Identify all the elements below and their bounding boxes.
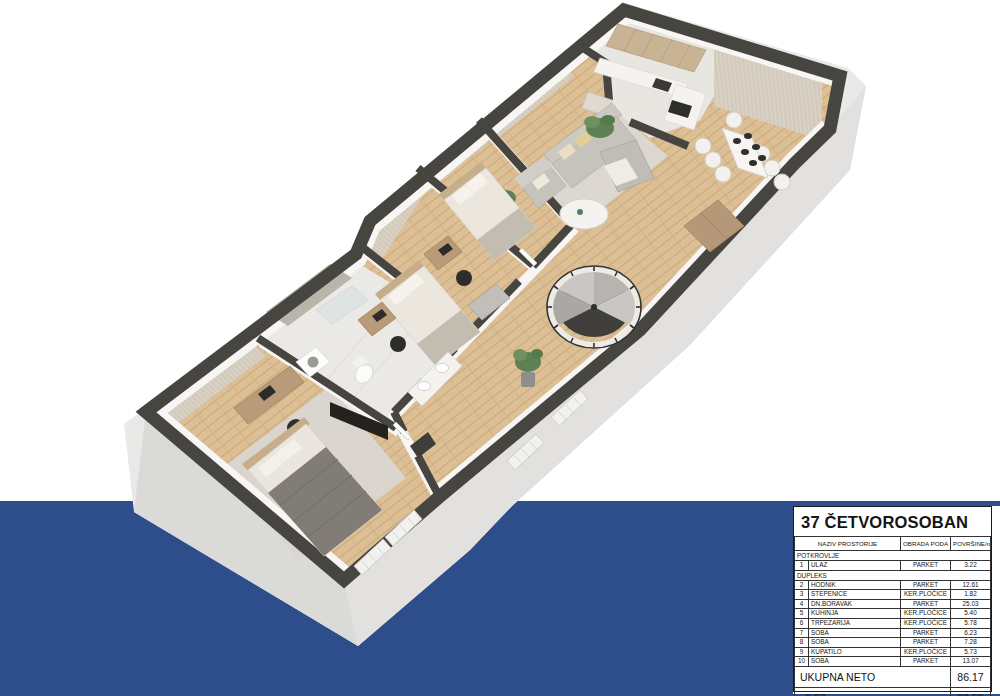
total-row: x0,97:83.58 [795, 687, 991, 696]
area-table-row: 8SOBAPARKET7.28 [795, 638, 991, 648]
area-table-row: 6TRPEZARIJAKER.PLOČICE5.78 [795, 618, 991, 628]
page: 37 ČETVOROSOBAN NAZIV PROSTORIJEOBRADA P… [0, 0, 1000, 696]
bed2-chair [390, 336, 406, 352]
coffee-table [560, 199, 608, 229]
total-row: UKUPNA NETO86.17 [795, 666, 991, 687]
section-row: POTKROVLJE [795, 551, 991, 561]
area-table-row: 2HODNIKPARKET12.61 [795, 580, 991, 590]
section-row: DUPLEKS [795, 570, 991, 580]
area-table-row: 3STEPENICEKER.PLOČICE1.82 [795, 590, 991, 600]
area-table-row: 10SOBAPARKET13.07 [795, 657, 991, 667]
area-table-row: 1ULAZPARKET3.22 [795, 561, 991, 571]
area-table: 37 ČETVOROSOBAN NAZIV PROSTORIJEOBRADA P… [793, 506, 1000, 694]
area-table-row: 5KUHINJAKER.PLOČICE5.40 [795, 609, 991, 619]
area-table-row: 7SOBAPARKET6.23 [795, 628, 991, 638]
table-title: 37 ČETVOROSOBAN [794, 507, 991, 536]
spiral-staircase [547, 266, 641, 348]
room-areas-table: NAZIV PROSTORIJEOBRADA PODAPOVRŠINE/m²PO… [794, 536, 991, 696]
area-table-row: 9KUPATILOKER.PLOČICE5.73 [795, 647, 991, 657]
table-header-row: NAZIV PROSTORIJEOBRADA PODAPOVRŠINE/m² [795, 537, 991, 551]
bed1-chair [456, 270, 472, 286]
area-table-row: 4DN.BORAVAKPARKET25.03 [795, 599, 991, 609]
